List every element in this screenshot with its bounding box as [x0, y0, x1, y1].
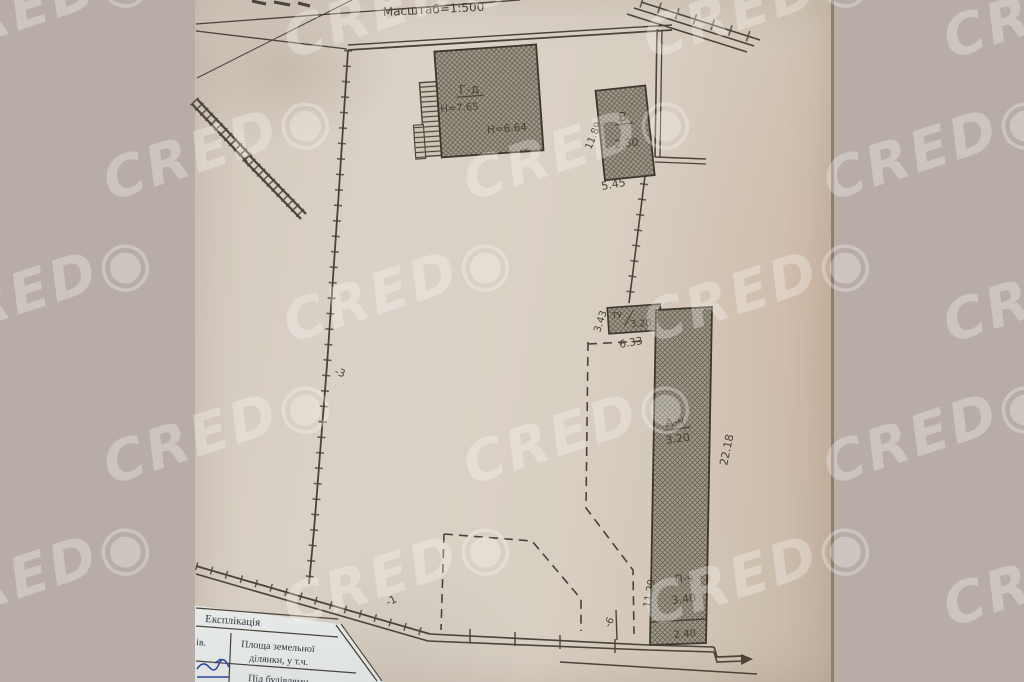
building-v: В 2.30 11.89 5.45 — [584, 86, 655, 193]
building-long-label: А-ч — [664, 413, 685, 429]
building-long: А-ч 3.20 22.18 П-ч 3.40 2.40 11.29 — [642, 307, 736, 645]
tu-label: ТУ — [610, 311, 623, 322]
dim-tu-left: 3.43 — [592, 309, 609, 334]
building-lower-value: 3.40 — [671, 591, 697, 606]
building-lower-label: П-ч — [674, 571, 694, 586]
site-plan-drawing: Масштаб=1:500 — [0, 0, 1024, 682]
table-col-header-partial: ів. — [196, 637, 207, 649]
point-label-1: -1 — [384, 593, 399, 608]
stairs-strip-lower — [413, 125, 425, 160]
building-main: Г-д Н=7.65 Н=6.64 — [408, 45, 543, 160]
building-v-label: В — [618, 109, 628, 125]
tu-box: ТУ 3.20 6.33 3.43 — [592, 304, 662, 351]
photo-background: Масштаб=1:500 — [0, 0, 1024, 682]
table-title: Експлікація — [205, 613, 261, 629]
building-lower-edge-value: 2.40 — [673, 628, 696, 641]
building-v-value: 2.30 — [614, 136, 640, 151]
building-main-label: Г-д — [459, 82, 480, 97]
dim-building-v-bottom: 5.45 — [600, 176, 626, 193]
point-label-6: -6 — [603, 616, 617, 630]
hatched-bars-top-left — [192, 99, 306, 219]
wall-end-arrow — [741, 654, 753, 665]
point-label-3: -3 — [333, 366, 347, 381]
table-under-buildings: Під будівлями — [248, 673, 310, 682]
tu-value: 3.20 — [630, 318, 652, 330]
dim-building-long-right: 22.18 — [717, 433, 736, 467]
dashed-outline — [441, 341, 646, 634]
scale-label: Масштаб=1:500 — [382, 0, 484, 19]
